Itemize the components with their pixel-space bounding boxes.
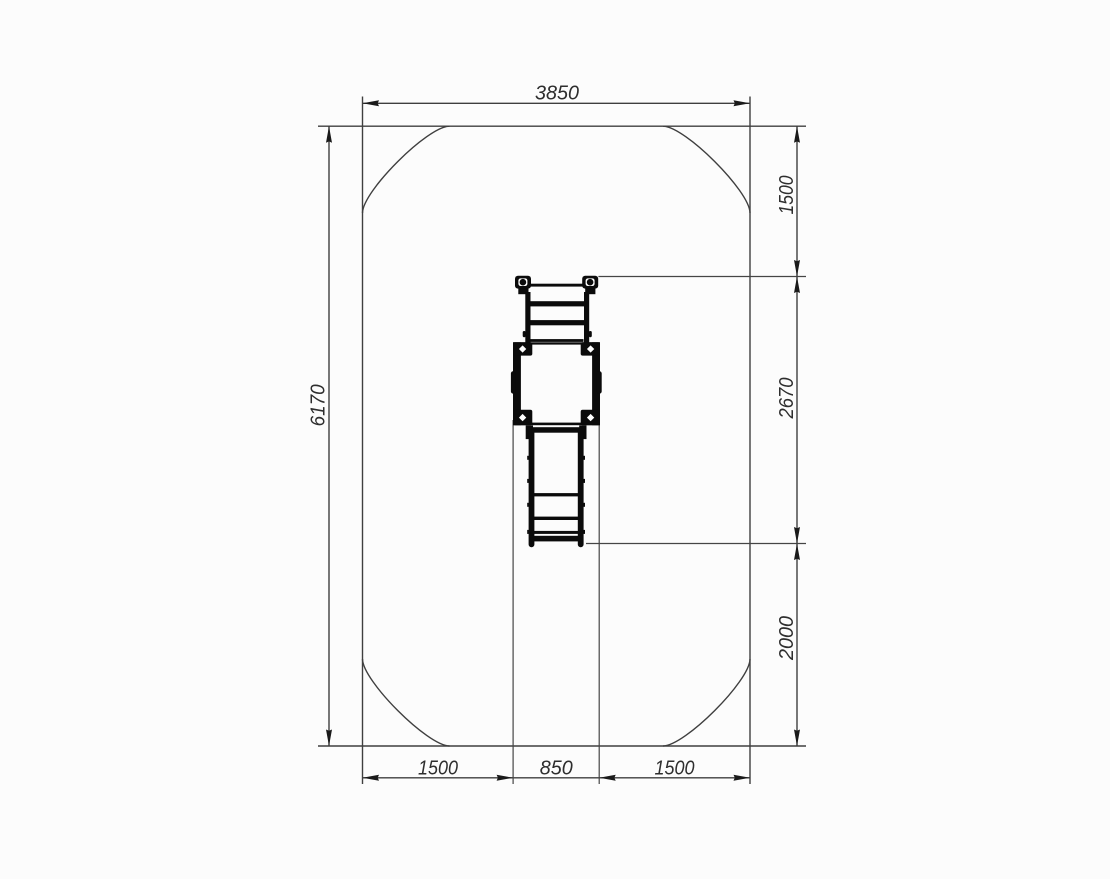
svg-text:1500: 1500 xyxy=(775,175,798,215)
svg-text:3850: 3850 xyxy=(535,81,580,104)
svg-text:1500: 1500 xyxy=(418,757,459,780)
svg-text:1500: 1500 xyxy=(655,757,696,780)
svg-text:6170: 6170 xyxy=(307,384,330,427)
svg-text:850: 850 xyxy=(540,757,574,780)
svg-text:2000: 2000 xyxy=(775,615,798,661)
svg-text:2670: 2670 xyxy=(775,377,798,419)
